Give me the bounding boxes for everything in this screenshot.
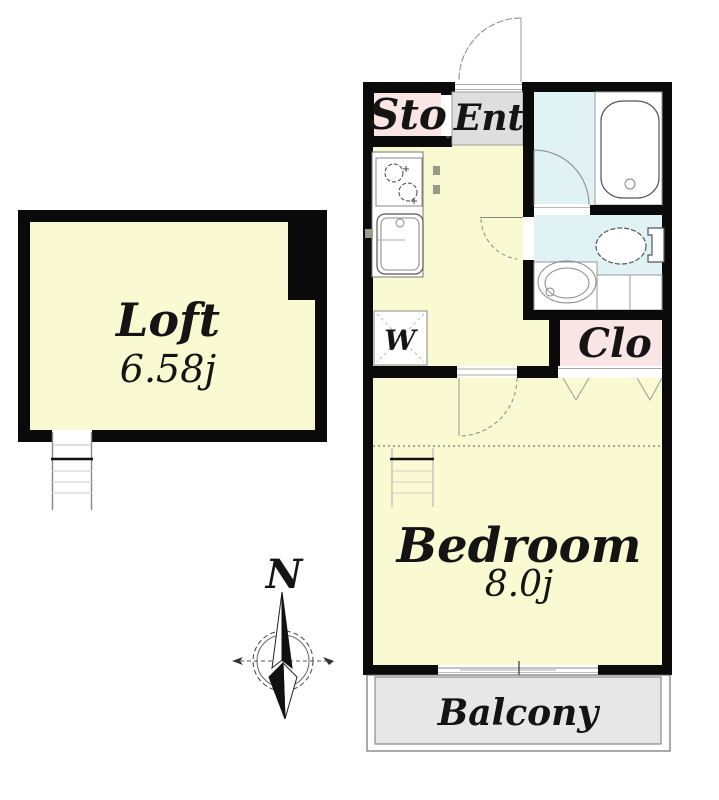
needle-north-black	[282, 592, 292, 668]
loft-label: Loft	[114, 293, 220, 347]
compass: N	[232, 551, 334, 719]
balcony-label: Balcony	[437, 692, 601, 734]
counter-knob	[433, 166, 440, 175]
washer-label: W	[384, 324, 418, 357]
washing-machine: W	[374, 311, 427, 365]
counter	[630, 275, 662, 310]
toilet-bottom-wall	[523, 310, 662, 320]
entrance-opening	[455, 82, 522, 92]
bathroom-left-wall	[523, 82, 534, 215]
loft-room: Loft 6.58j	[18, 210, 327, 510]
bathtub	[601, 101, 659, 198]
loft-corner-notch	[288, 222, 315, 300]
closet-opening	[558, 366, 662, 378]
entrance-area: Ent	[452, 92, 524, 145]
toilet-door-opening	[523, 217, 534, 260]
loft-ladder	[51, 430, 93, 510]
main-unit: Sto Ent	[363, 18, 672, 681]
kitchen-sink	[377, 214, 423, 274]
storage-label: Sto	[369, 90, 447, 139]
needle-south-black	[269, 663, 285, 719]
entrance-label: Ent	[453, 97, 525, 139]
compass-needle	[269, 592, 297, 719]
counter	[597, 275, 630, 310]
needle-north-white	[272, 592, 282, 668]
bathroom-door-threshold	[534, 205, 590, 215]
toilet-bowl	[596, 228, 646, 264]
floor-plan: Loft 6.58j Sto Ent	[0, 0, 719, 800]
bathroom	[523, 82, 662, 216]
door-swing-arc	[459, 18, 521, 80]
compass-north-label: N	[264, 551, 304, 598]
floor-plan-drawing: Loft 6.58j Sto Ent	[0, 0, 719, 800]
closet-left-wall	[549, 318, 560, 368]
toilet	[596, 228, 664, 264]
bedroom-area-label: 8.0j	[485, 564, 553, 605]
counter-knob	[433, 185, 440, 194]
loft-area-label: 6.58j	[120, 347, 217, 391]
closet: Clo	[549, 318, 662, 368]
bedroom-door-opening	[457, 366, 517, 378]
closet-label: Clo	[578, 320, 652, 367]
wall-fitting	[365, 229, 373, 238]
sink-outer	[377, 214, 423, 274]
balcony: Balcony	[367, 675, 670, 751]
loft-ladder-opening	[52, 430, 92, 442]
entrance-door	[455, 18, 522, 92]
